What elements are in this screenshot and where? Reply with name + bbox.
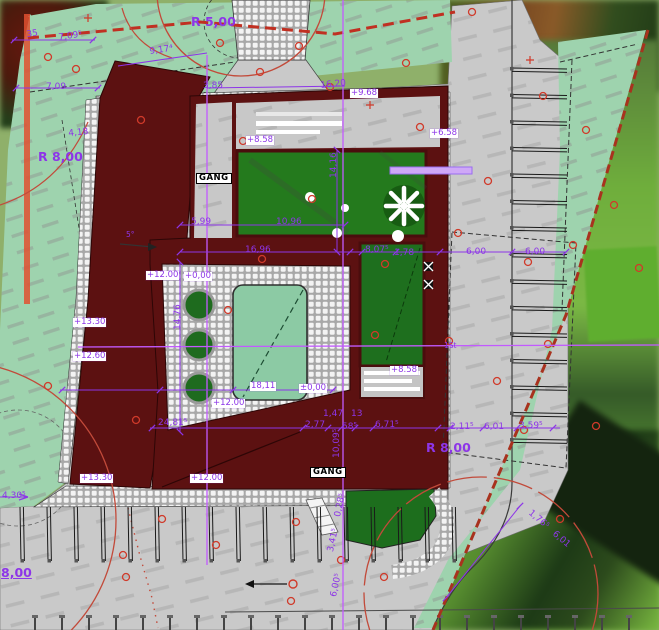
- building-layer: [70, 61, 472, 489]
- site-plan-svg: [0, 0, 659, 630]
- site-plan-canvas: R 5,009,17⁴357,09⁵7,094,18R 8,003,8516,2…: [0, 0, 659, 630]
- tree-symbol: [383, 185, 425, 227]
